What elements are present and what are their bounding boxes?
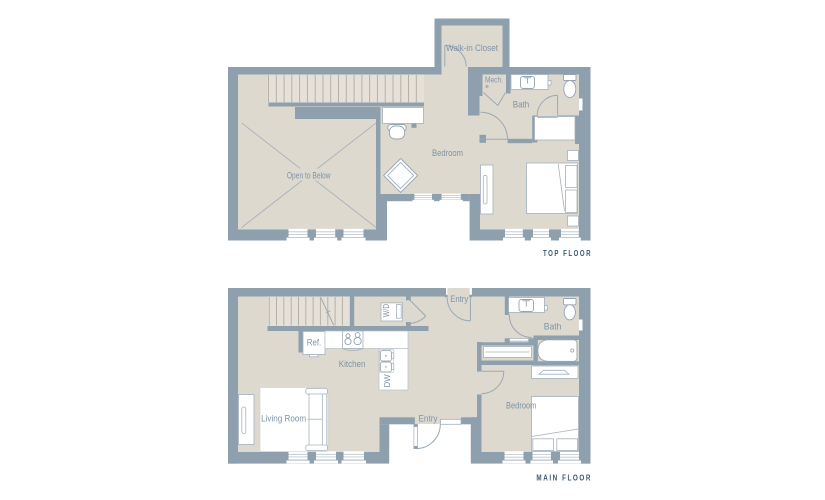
svg-text:Kitchen: Kitchen — [339, 359, 366, 369]
svg-text:Entry: Entry — [450, 294, 468, 304]
svg-text:Bath: Bath — [513, 99, 530, 109]
svg-text:Bedroom: Bedroom — [506, 400, 536, 410]
svg-text:MAIN FLOOR: MAIN FLOOR — [536, 473, 592, 482]
svg-text:Entry: Entry — [419, 413, 438, 423]
svg-text:Ref.: Ref. — [307, 338, 322, 348]
svg-text:Bedroom: Bedroom — [432, 148, 463, 158]
svg-text:Living Room: Living Room — [261, 414, 306, 424]
svg-text:Walk-in Closet: Walk-in Closet — [446, 43, 498, 53]
svg-text:DW: DW — [383, 374, 392, 388]
svg-text:Mech.: Mech. — [485, 75, 503, 84]
svg-text:Open to Below: Open to Below — [287, 170, 331, 180]
svg-text:W/D: W/D — [382, 303, 391, 317]
svg-text:Bath: Bath — [544, 321, 562, 331]
svg-text:TOP FLOOR: TOP FLOOR — [543, 249, 592, 258]
